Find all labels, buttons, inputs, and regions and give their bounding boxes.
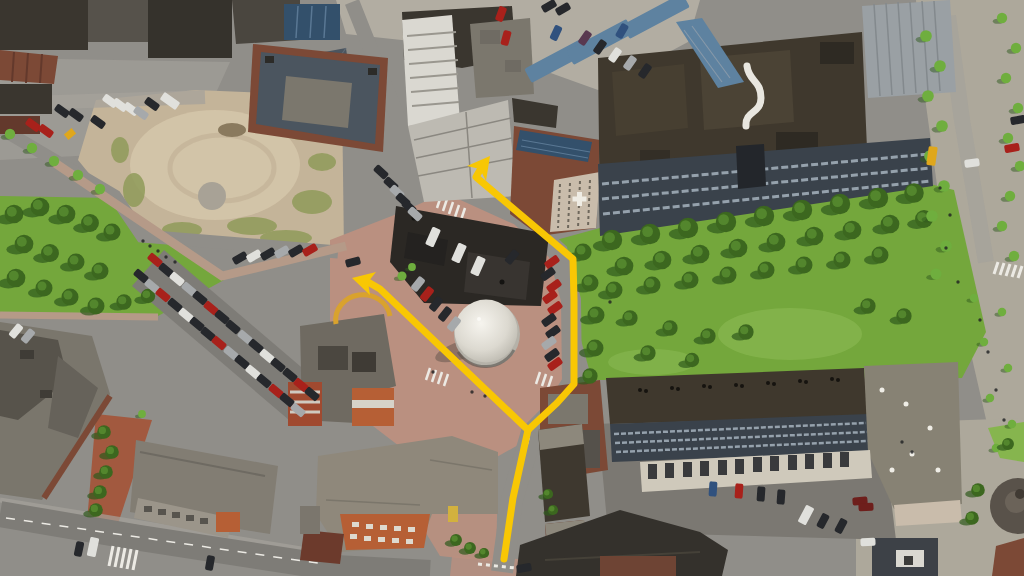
gravel-patch bbox=[198, 182, 226, 210]
yellow-panel bbox=[448, 506, 458, 522]
dirt-pile bbox=[218, 123, 246, 137]
roof-tip bbox=[477, 317, 481, 321]
aerial-photo: Oblique aerial photograph of a town cent… bbox=[0, 0, 1024, 576]
aerial-photo-canvas bbox=[0, 0, 1024, 576]
